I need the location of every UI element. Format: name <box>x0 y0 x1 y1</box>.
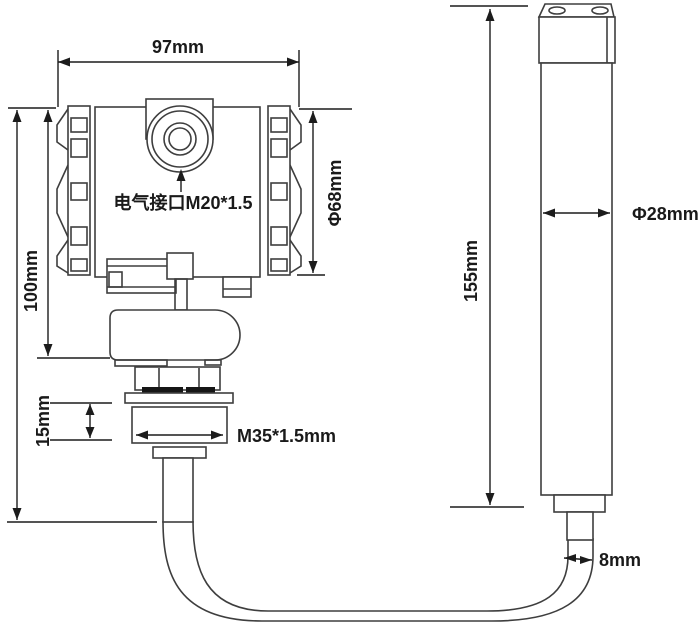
dim-label-housing-diameter: Φ68mm <box>325 160 345 227</box>
oval-process-connection <box>110 310 240 366</box>
probe-neck <box>567 512 593 540</box>
dim-label-probe-diameter: Φ28mm <box>632 204 699 224</box>
conduit-tube <box>163 458 193 522</box>
dim-label-probe-length: 155mm <box>461 240 481 302</box>
electrical-port <box>146 99 213 172</box>
collar <box>135 367 220 390</box>
cable <box>163 521 593 621</box>
gasket-pad-left <box>142 387 183 393</box>
probe <box>539 4 615 540</box>
dimension-housing-width: 97mm <box>58 37 299 107</box>
dim-label-housing-height: 100mm <box>21 250 41 312</box>
dimension-probe-length: 155mm <box>450 6 528 507</box>
mounting-flange <box>125 393 233 403</box>
probe-cap <box>539 17 615 63</box>
lower-collar <box>153 447 206 458</box>
dimension-thread-height: 15mm <box>33 395 112 447</box>
probe-body <box>541 63 612 495</box>
dim-label-cable-diameter: 8mm <box>599 550 641 570</box>
transmitter-housing <box>57 99 301 522</box>
dim-label-process-thread: M35*1.5mm <box>237 426 336 446</box>
dimension-housing-diameter: Φ68mm <box>297 109 352 275</box>
label-electrical-interface: 电气接口M20*1.5 <box>113 192 252 213</box>
dim-label-thread-height: 15mm <box>33 395 53 447</box>
gasket-pad-right <box>186 387 215 393</box>
side-cover-right <box>268 106 301 275</box>
dimension-drawing: 97mm 100mm 15mm Φ68mm <box>0 0 700 629</box>
probe-top-face <box>539 4 614 17</box>
dimension-cable-diameter: 8mm <box>564 550 641 570</box>
process-fitting <box>125 367 233 522</box>
side-cover-left <box>57 106 90 275</box>
probe-shoulder <box>554 495 605 512</box>
dim-label-housing-width: 97mm <box>152 37 204 57</box>
diagram-canvas: 97mm 100mm 15mm Φ68mm <box>0 0 700 629</box>
